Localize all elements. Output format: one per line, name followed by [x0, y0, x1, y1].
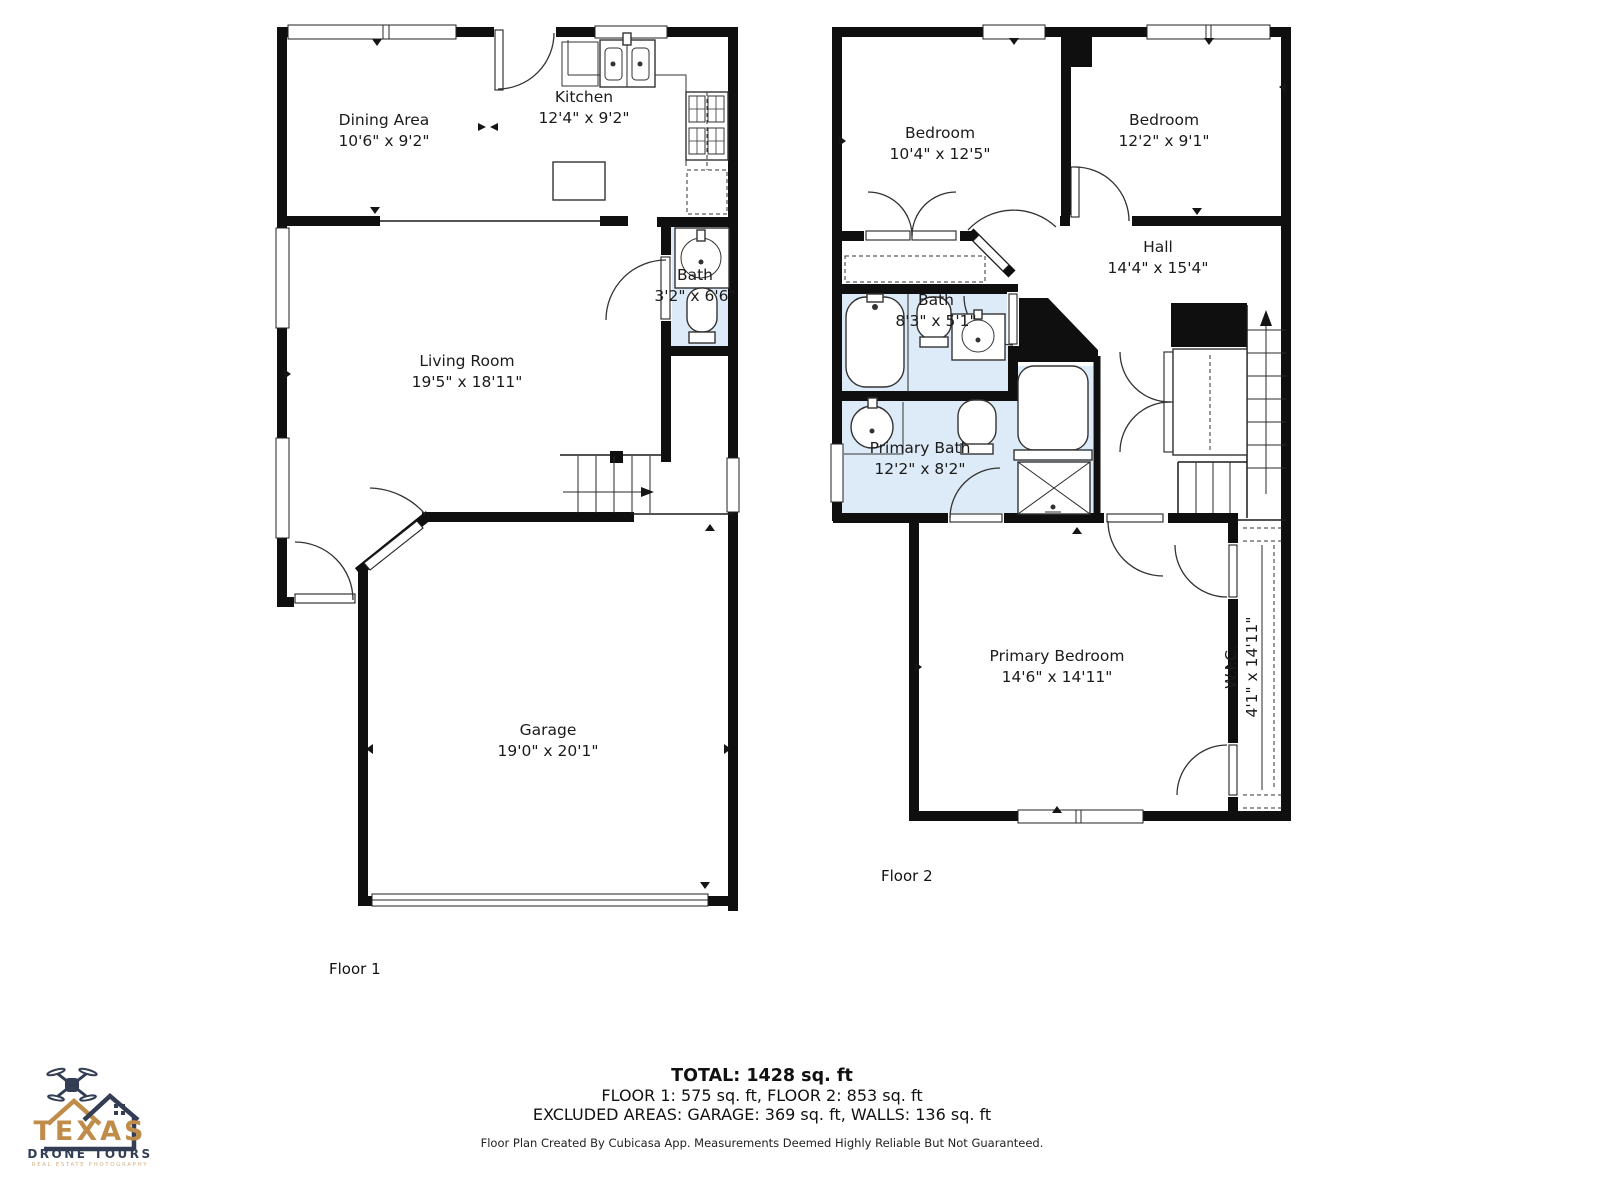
door-arc [1120, 402, 1170, 452]
room-dims: 12'2" x 9'1" [1118, 131, 1209, 152]
floor1-windows [276, 25, 739, 906]
room-name: W.I.C. [1221, 617, 1242, 718]
room-label-bedroom-1: Bedroom 10'4" x 12'5" [890, 123, 991, 165]
room-label-dining-area: Dining Area 10'6" x 9'2" [338, 110, 429, 152]
logo-subtitle: DRONE TOURS [26, 1147, 154, 1161]
floor-areas: FLOOR 1: 575 sq. ft, FLOOR 2: 853 sq. ft [533, 1087, 991, 1106]
room-label-garage: Garage 19'0" x 20'1" [498, 720, 599, 762]
room-dims: 12'4" x 9'2" [538, 108, 629, 129]
door-arc [370, 488, 425, 514]
bedroom-closet [845, 256, 985, 282]
room-dims: 8'3" x 5'1" [895, 311, 976, 332]
door-leaf [950, 514, 1002, 522]
room-label-bath2: Bath 8'3" x 5'1" [895, 290, 976, 332]
room-dims: 4'1" x 14'11" [1242, 617, 1263, 718]
window [276, 438, 289, 538]
door-arc [1175, 545, 1227, 597]
total-area: TOTAL: 1428 sq. ft [533, 1066, 991, 1086]
texas-drone-tours-logo: TEXAS DRONE TOURS REAL ESTATE PHOTOGRAPH… [26, 1046, 154, 1170]
excluded-areas: EXCLUDED AREAS: GARAGE: 369 sq. ft, WALL… [533, 1106, 991, 1125]
floorplan-canvas [0, 0, 1600, 1200]
room-name: Garage [498, 720, 599, 741]
door-arc [912, 192, 956, 236]
drone-icon [47, 1067, 98, 1101]
door-leaf [495, 30, 503, 90]
window [727, 458, 739, 512]
closet-door-leaf [1164, 352, 1173, 402]
room-label-wic: W.I.C. 4'1" x 14'11" [1221, 617, 1263, 718]
room-name: Dining Area [338, 110, 429, 131]
kitchen-island [553, 162, 605, 200]
door-arc [295, 542, 353, 600]
room-name: Primary Bath [870, 438, 971, 459]
logo-title: TEXAS [26, 1116, 154, 1147]
door-leaf [1229, 545, 1237, 597]
front-door-leaf [295, 594, 355, 603]
stairs-direction-arrow [641, 487, 654, 497]
door-leaf [364, 521, 423, 570]
room-dims: 10'4" x 12'5" [890, 144, 991, 165]
door-arc [1177, 745, 1227, 795]
window [276, 228, 289, 328]
room-label-primary-bath: Primary Bath 12'2" x 8'2" [870, 438, 971, 480]
room-label-hall: Hall 14'4" x 15'4" [1108, 237, 1209, 279]
room-name: Bath [895, 290, 976, 311]
room-dims: 12'2" x 8'2" [870, 459, 971, 480]
floor2-label: Floor 2 [881, 867, 933, 885]
door-arc [1108, 521, 1163, 576]
kitchen-cabinet [562, 42, 598, 86]
room-name: Bedroom [890, 123, 991, 144]
door-leaf [1107, 514, 1163, 522]
window [831, 444, 843, 502]
faucet-icon [867, 294, 883, 302]
faucet-icon [868, 398, 877, 408]
door-arc [1120, 352, 1170, 402]
room-name: Bath [654, 265, 735, 286]
area-summary: TOTAL: 1428 sq. ft FLOOR 1: 575 sq. ft, … [533, 1066, 991, 1124]
room-name: Hall [1108, 237, 1209, 258]
room-dims: 19'5" x 18'11" [412, 372, 523, 393]
floor1-plan [276, 25, 739, 911]
window [983, 25, 1045, 39]
closet-door-leaf [866, 231, 910, 240]
floor1-label: Floor 1 [329, 960, 381, 978]
room-name: Living Room [412, 351, 523, 372]
room-name: Bedroom [1118, 110, 1209, 131]
door-arc [968, 210, 1056, 230]
faucet-icon [697, 230, 705, 241]
floorplan-page: { "colors": { "wall": "#0f0f0f", "bath_f… [0, 0, 1600, 1200]
window [288, 25, 456, 39]
door-arc [1075, 167, 1129, 221]
room-dims: 14'6" x 14'11" [990, 667, 1125, 688]
stairs-direction-arrow [1260, 310, 1272, 326]
logo-tagline: REAL ESTATE PHOTOGRAPHY [26, 1162, 154, 1168]
door-arc [868, 192, 912, 236]
closet-door-leaf [912, 231, 956, 240]
door-arc [498, 33, 554, 89]
bathtub-icon [1018, 366, 1088, 450]
room-name: Primary Bedroom [990, 646, 1125, 667]
room-dims: 10'6" x 9'2" [338, 131, 429, 152]
door-leaf [1071, 167, 1079, 217]
floor1-stairs [563, 456, 654, 513]
disclaimer-text: Floor Plan Created By Cubicasa App. Meas… [481, 1136, 1044, 1150]
room-name: Kitchen [538, 87, 629, 108]
room-label-living-room: Living Room 19'5" x 18'11" [412, 351, 523, 393]
room-label-primary-bedroom: Primary Bedroom 14'6" x 14'11" [990, 646, 1125, 688]
room-dims: 3'2" x 6'6" [654, 286, 735, 307]
closet-door-leaf [1164, 402, 1173, 452]
room-label-kitchen: Kitchen 12'4" x 9'2" [538, 87, 629, 129]
faucet-icon [623, 33, 631, 45]
door-leaf [1229, 745, 1237, 795]
refrigerator-icon [687, 170, 727, 214]
floor1-walls [277, 27, 738, 911]
window [1147, 25, 1270, 39]
room-label-bath1: Bath 3'2" x 6'6" [654, 265, 735, 307]
room-label-bedroom-2: Bedroom 12'2" x 9'1" [1118, 110, 1209, 152]
room-dims: 19'0" x 20'1" [498, 741, 599, 762]
door-leaf [1009, 294, 1017, 344]
room-dims: 14'4" x 15'4" [1108, 258, 1209, 279]
